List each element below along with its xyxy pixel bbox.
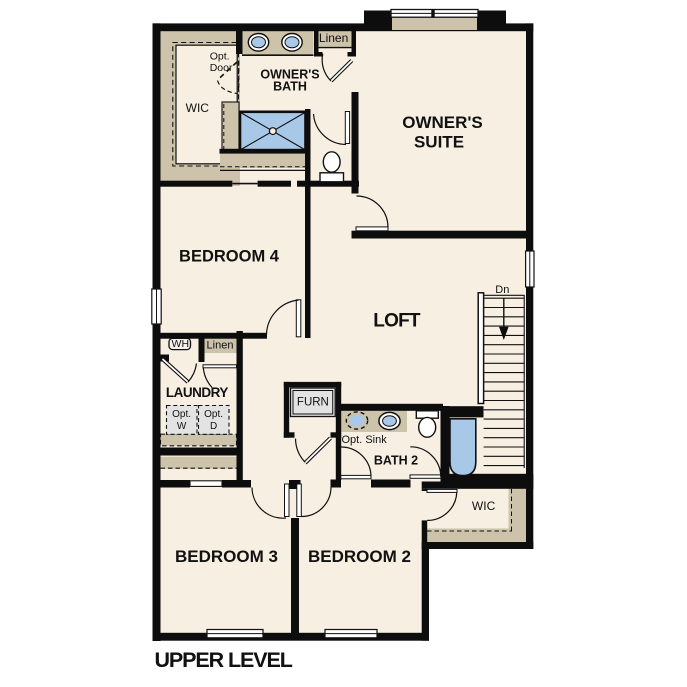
svg-text:WIC: WIC bbox=[472, 499, 496, 513]
svg-text:Opt.: Opt. bbox=[172, 409, 191, 420]
svg-text:Opt. Sink: Opt. Sink bbox=[342, 434, 388, 446]
svg-text:WIC: WIC bbox=[186, 101, 210, 115]
svg-text:BATH: BATH bbox=[273, 80, 307, 94]
svg-text:Door: Door bbox=[210, 62, 233, 74]
svg-text:UPPER LEVEL: UPPER LEVEL bbox=[155, 648, 293, 672]
svg-text:D: D bbox=[210, 421, 217, 432]
svg-text:OWNER'S: OWNER'S bbox=[402, 113, 483, 132]
svg-text:FURN: FURN bbox=[297, 397, 329, 409]
svg-text:LAUNDRY: LAUNDRY bbox=[166, 385, 228, 400]
svg-text:W: W bbox=[177, 421, 187, 432]
svg-text:BATH 2: BATH 2 bbox=[374, 453, 418, 467]
svg-text:LOFT: LOFT bbox=[373, 311, 421, 332]
svg-text:Linen: Linen bbox=[319, 31, 348, 45]
svg-text:Linen: Linen bbox=[207, 340, 234, 352]
svg-text:WH: WH bbox=[172, 338, 190, 350]
svg-text:BEDROOM 4: BEDROOM 4 bbox=[179, 248, 280, 266]
svg-text:BEDROOM 3: BEDROOM 3 bbox=[175, 547, 278, 566]
svg-text:BEDROOM 2: BEDROOM 2 bbox=[308, 547, 411, 566]
svg-text:Opt.: Opt. bbox=[204, 409, 223, 420]
svg-text:Opt.: Opt. bbox=[210, 50, 230, 62]
svg-text:SUITE: SUITE bbox=[414, 133, 464, 152]
svg-text:Dn: Dn bbox=[495, 284, 509, 296]
